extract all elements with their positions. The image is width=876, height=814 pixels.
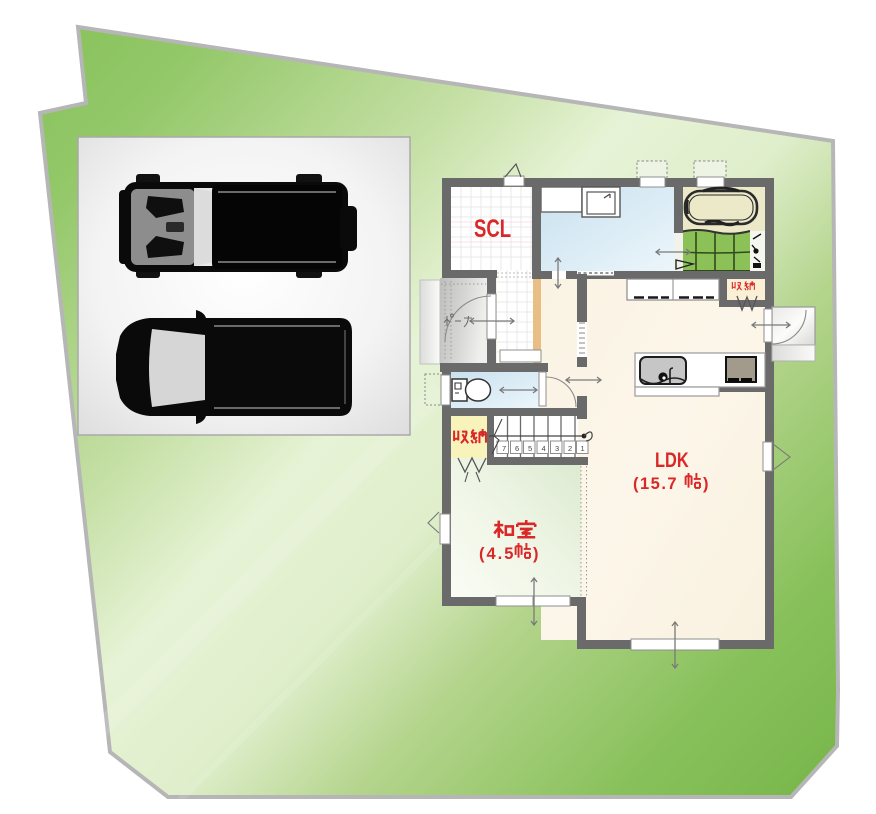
svg-text:1: 1 [581,444,585,453]
svg-text:SCL: SCL [474,214,511,242]
svg-text:3: 3 [555,444,559,453]
svg-text:2: 2 [568,444,572,453]
svg-text:5: 5 [528,444,532,453]
svg-text:(15.7: (15.7 [633,475,678,493]
svg-text:LDK: LDK [655,448,689,471]
svg-text:6: 6 [515,444,519,453]
svg-text:7: 7 [502,444,506,453]
svg-text:): ) [703,475,709,493]
svg-text:4: 4 [542,444,546,453]
svg-text:(4.5: (4.5 [479,545,515,563]
svg-text:): ) [533,545,539,563]
